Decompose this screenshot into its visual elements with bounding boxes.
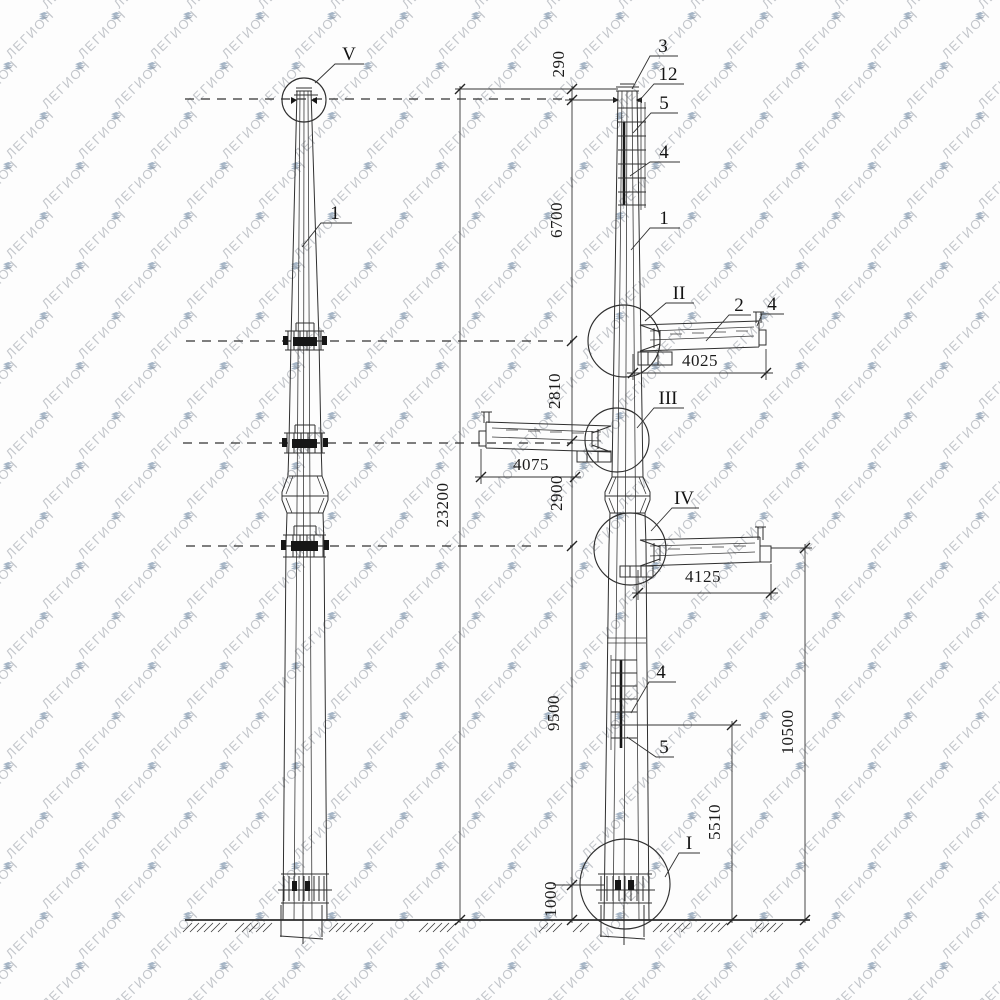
detail-circle-ii	[588, 305, 660, 377]
dim-mid-2810: 2810	[545, 373, 564, 409]
callout-1-right: 1	[659, 208, 669, 229]
callout-4-arm: 4	[767, 294, 777, 315]
dim-top-offset: 290	[549, 51, 568, 78]
left-collar-upper	[283, 323, 327, 350]
detail-circle-iii	[585, 408, 649, 472]
callout-5-bottom: 5	[659, 737, 669, 758]
callout-12: 12	[659, 64, 678, 85]
callout-5-top: 5	[659, 93, 669, 114]
callout-detail-iv: IV	[674, 488, 694, 509]
callout-3: 3	[658, 36, 668, 57]
dim-lower-9500: 9500	[544, 695, 563, 731]
ground-line	[183, 920, 810, 932]
dim-arm-iv-4125: 4125	[685, 567, 721, 586]
left-collar-lower	[281, 526, 329, 557]
dim-upper-6700: 6700	[547, 202, 566, 238]
callout-4-top: 4	[659, 142, 669, 163]
dim-base-1000: 1000	[541, 881, 560, 917]
dim-arm-iii-4075: 4075	[513, 455, 549, 474]
left-foundation	[280, 905, 323, 944]
dim-total-height: 23200	[433, 483, 452, 528]
left-flare-joint	[282, 476, 328, 513]
dim-arm-ii-4025: 4025	[682, 351, 718, 370]
callout-2: 2	[734, 295, 744, 316]
right-flare-joint	[605, 477, 650, 513]
dim-right-5510: 5510	[705, 804, 724, 840]
callout-1-left: 1	[330, 203, 340, 224]
right-pole-view	[479, 84, 771, 945]
scanned-drawing-page: ЛЕГИОНЛЕГИОНЛЕГИОНЛЕГИОНЛЕГИОНЛЕГИОНЛЕГИ…	[0, 0, 1000, 1000]
technical-drawing: 290 6700 2810 2900 9500 23200 1000 10500…	[0, 0, 1000, 1000]
projection-dashed-lines	[183, 99, 573, 546]
callout-detail-v: V	[342, 44, 356, 65]
callout-detail-ii: II	[673, 283, 686, 304]
dim-right-10500: 10500	[778, 710, 797, 755]
left-pole-view	[278, 78, 332, 944]
dimension-lines	[455, 84, 812, 925]
dim-mid-2900: 2900	[547, 475, 566, 511]
callout-detail-iii: III	[659, 388, 678, 409]
left-base-flange	[278, 874, 332, 903]
callout-detail-i: I	[686, 833, 692, 854]
callout-4-bottom: 4	[656, 662, 666, 683]
